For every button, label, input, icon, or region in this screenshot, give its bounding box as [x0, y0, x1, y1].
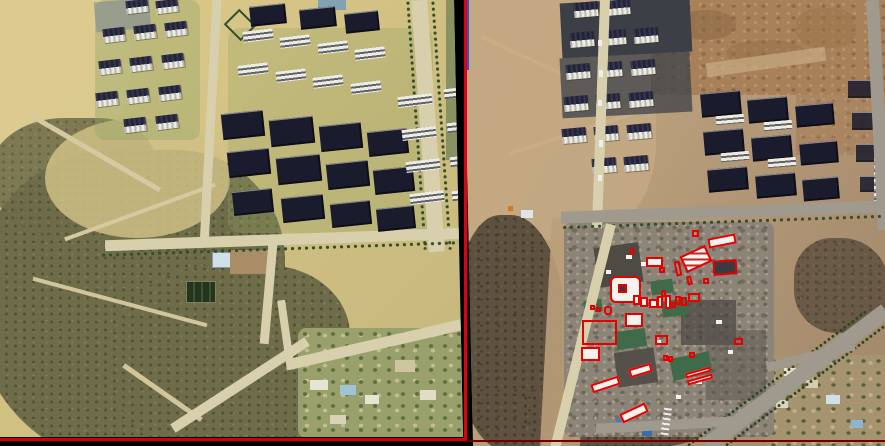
annotation-layer: [466, 0, 885, 446]
change-detection-box: [619, 403, 649, 424]
building-block: [326, 160, 370, 190]
village-house: [365, 395, 379, 404]
building-block: [249, 3, 287, 27]
change-detection-box: [596, 307, 601, 312]
building-block: [269, 116, 316, 147]
right-image-bottom-border: [466, 440, 885, 442]
change-detection-box: [674, 261, 683, 277]
building-rowhouse: [126, 88, 150, 105]
change-detection-box: [625, 313, 643, 327]
change-detection-box: [640, 297, 648, 307]
change-detection-box: [713, 259, 738, 276]
change-detection-box: [657, 296, 663, 308]
building-block: [227, 148, 271, 178]
change-detection-box: [633, 295, 640, 305]
building-rowhouse: [155, 114, 179, 131]
change-detection-box: [582, 320, 617, 345]
blue-edge-line: [467, 0, 469, 70]
building-rowhouse: [98, 59, 122, 76]
change-detection-box: [628, 363, 653, 378]
building-rowhouse: [158, 85, 182, 102]
change-detection-box: [681, 297, 687, 306]
village-house: [395, 360, 415, 372]
before-image-panel: [0, 0, 466, 446]
change-detection-box: [692, 230, 699, 237]
building-rowhouse: [95, 91, 119, 108]
building-block: [299, 6, 337, 30]
building-block: [376, 205, 416, 232]
change-detection-box: [734, 338, 743, 345]
change-detection-box: [618, 284, 627, 293]
left-image-bottom-border: [0, 438, 466, 441]
building-block: [221, 110, 265, 140]
change-detection-box: [680, 245, 713, 273]
pond: [186, 281, 216, 303]
change-detection-box: [655, 335, 668, 345]
building-block: [319, 122, 363, 152]
change-detection-box: [629, 248, 635, 255]
change-detection-box: [686, 276, 693, 286]
village-house: [340, 385, 356, 395]
change-detection-box: [707, 233, 736, 248]
change-detection-box: [581, 347, 600, 361]
change-detection-box: [590, 376, 620, 394]
change-detection-box: [689, 352, 695, 358]
after-image-panel: [466, 0, 885, 446]
green-strip: [446, 0, 466, 160]
building-block: [344, 10, 380, 33]
dirt-lot: [230, 250, 270, 274]
change-detection-viewer: [0, 0, 885, 446]
change-detection-box: [590, 305, 595, 310]
before-image-content: [0, 0, 466, 446]
village-house: [330, 415, 346, 424]
building-block: [330, 200, 372, 228]
building-rowhouse: [102, 27, 126, 44]
change-detection-box: [659, 267, 665, 273]
change-detection-box: [703, 278, 709, 284]
change-detection-box: [688, 293, 700, 302]
building-rowhouse: [129, 56, 153, 73]
building-block: [276, 154, 323, 185]
change-detection-box: [604, 306, 612, 315]
building-block: [232, 188, 274, 216]
village-house: [310, 380, 328, 390]
village-house: [420, 390, 436, 400]
change-detection-box: [646, 257, 663, 267]
building-block: [281, 194, 325, 223]
building-rowhouse: [164, 21, 188, 38]
building-rowhouse-white: [443, 87, 466, 100]
building-rowhouse: [123, 117, 147, 134]
building-rowhouse: [161, 53, 185, 70]
building-rowhouse: [133, 24, 157, 41]
change-detection-box: [668, 356, 673, 362]
